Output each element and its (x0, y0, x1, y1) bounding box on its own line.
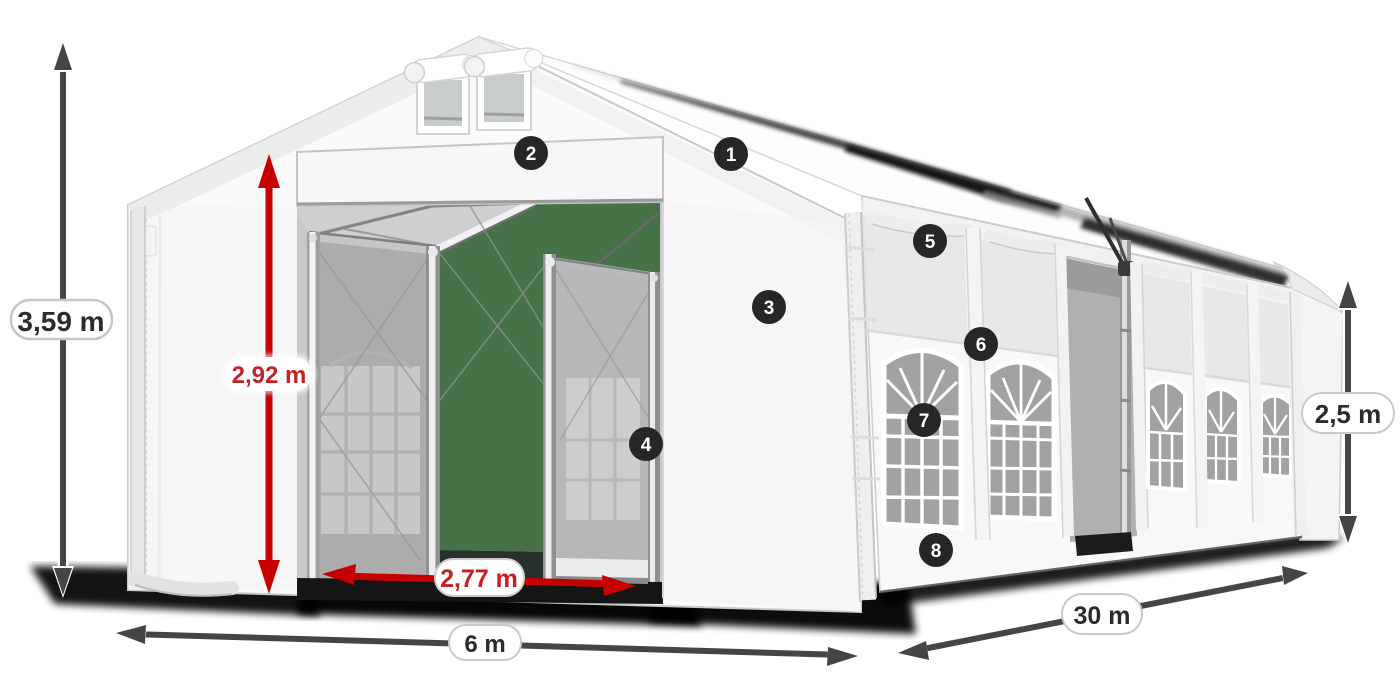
svg-text:7: 7 (919, 411, 930, 432)
svg-text:2,5 m: 2,5 m (1315, 399, 1382, 429)
svg-text:30 m: 30 m (1074, 602, 1131, 630)
svg-text:6 m: 6 m (464, 631, 505, 658)
svg-text:4: 4 (641, 435, 652, 456)
svg-text:6: 6 (976, 335, 987, 356)
svg-text:2,92 m: 2,92 m (232, 362, 307, 389)
svg-text:2: 2 (526, 144, 537, 165)
svg-text:8: 8 (931, 541, 942, 562)
svg-text:1: 1 (726, 145, 737, 166)
svg-text:2,77 m: 2,77 m (440, 565, 518, 593)
svg-text:3,59 m: 3,59 m (17, 306, 104, 337)
svg-text:5: 5 (925, 232, 936, 253)
svg-text:3: 3 (764, 298, 775, 319)
